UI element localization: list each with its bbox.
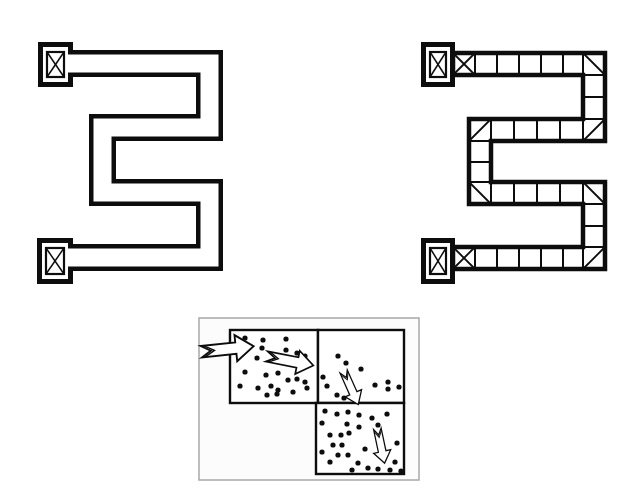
grid-cell <box>563 247 583 269</box>
person-dot <box>356 424 361 429</box>
person-dot <box>302 379 307 384</box>
person-dot <box>338 432 343 437</box>
person-dot <box>343 360 348 365</box>
person-dot <box>349 467 354 472</box>
person-dot <box>344 421 349 426</box>
person-dot <box>396 384 401 389</box>
person-dot <box>319 420 324 425</box>
person-dot <box>304 385 309 390</box>
person-dot <box>322 408 327 413</box>
person-dot <box>375 466 380 471</box>
person-dot <box>375 422 380 427</box>
grid-cell <box>469 162 491 182</box>
person-dot <box>319 449 324 454</box>
person-dot <box>334 411 339 416</box>
person-dot <box>387 467 392 472</box>
maze-plain <box>40 45 210 282</box>
person-dot <box>392 459 397 464</box>
grid-cell <box>583 97 605 119</box>
person-dot <box>283 347 288 352</box>
grid-cell <box>537 119 560 141</box>
person-dot <box>294 376 299 381</box>
person-dot <box>320 374 325 379</box>
person-dot <box>285 377 290 382</box>
grid-cell <box>560 182 583 204</box>
grid-cell <box>475 53 497 75</box>
person-dot <box>290 389 295 394</box>
person-dot <box>327 459 332 464</box>
person-dot <box>327 432 332 437</box>
corridor-interior <box>64 64 210 258</box>
person-dot <box>394 440 399 445</box>
grid-cell <box>583 226 605 247</box>
person-dot <box>355 460 360 465</box>
person-dot <box>275 370 280 375</box>
person-dot <box>330 442 335 447</box>
grid-cell <box>541 53 563 75</box>
person-dot <box>283 336 288 341</box>
person-dot <box>237 383 242 388</box>
grid-cell <box>541 247 563 269</box>
person-dot <box>384 411 389 416</box>
corridor-wall <box>64 64 210 258</box>
grid-cell <box>475 247 497 269</box>
grid-cell <box>519 53 541 75</box>
grid-cell <box>537 182 560 204</box>
maze-grid <box>424 45 606 282</box>
grid-cell <box>497 53 519 75</box>
person-dot <box>334 392 339 397</box>
grid-cell <box>491 119 514 141</box>
person-dot <box>346 430 351 435</box>
person-dot <box>398 468 403 473</box>
person-dot <box>385 386 390 391</box>
person-dot <box>345 409 350 414</box>
person-dot <box>365 465 370 470</box>
person-dot <box>259 345 264 350</box>
grid-cell <box>469 141 491 162</box>
person-dot <box>255 385 260 390</box>
grid-cell <box>583 75 605 97</box>
person-dot <box>369 415 374 420</box>
person-dot <box>263 372 268 377</box>
person-dot <box>264 392 269 397</box>
person-dot <box>372 382 377 387</box>
grid-cell <box>519 247 541 269</box>
grid-cell <box>514 182 537 204</box>
figure-page <box>0 0 635 491</box>
person-dot <box>324 383 329 388</box>
grid-cell <box>514 119 537 141</box>
person-dot <box>242 369 247 374</box>
flow-diagram <box>199 318 419 480</box>
person-dot <box>358 366 363 371</box>
person-dot <box>335 353 340 358</box>
grid-cell <box>563 53 583 75</box>
person-dot <box>335 452 340 457</box>
person-dot <box>339 442 344 447</box>
person-dot <box>260 337 265 342</box>
grid-cell <box>560 119 583 141</box>
person-dot <box>268 383 273 388</box>
person-dot <box>254 355 259 360</box>
grid-cell <box>491 182 514 204</box>
figure-canvas <box>0 0 635 491</box>
person-dot <box>356 412 361 417</box>
person-dot <box>274 391 279 396</box>
grid-cell <box>583 204 605 226</box>
person-dot <box>345 452 350 457</box>
person-dot <box>362 446 367 451</box>
person-dot <box>385 379 390 384</box>
grid-cell <box>497 247 519 269</box>
